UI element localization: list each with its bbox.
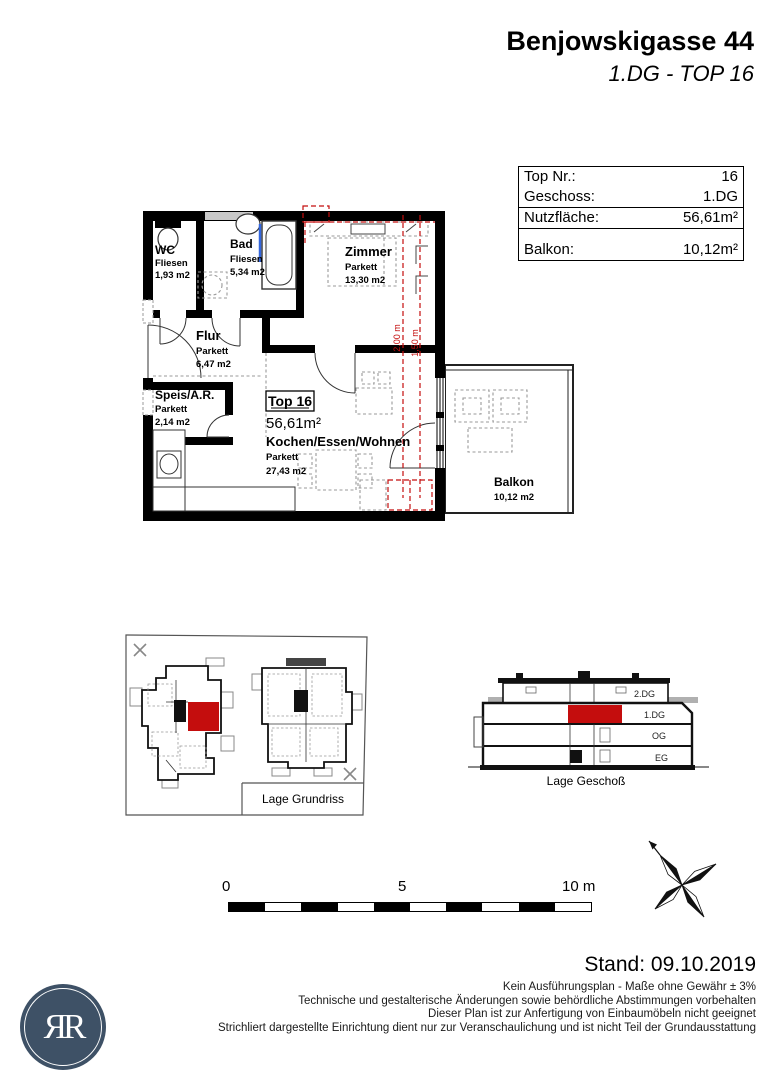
unit-label: Top 16 [268, 393, 312, 409]
disclaimer-line: Kein Ausführungsplan - Maße ohne Gewähr … [218, 981, 756, 995]
table-row: Top Nr.: 16 [519, 167, 743, 187]
floor-plan-drawing: 2,00 m 1,50 m WC Fliesen 1,93 m2 Bad Fli… [138, 188, 583, 533]
room-name-flur: Flur [196, 328, 221, 343]
unit-area: 56,61m² [266, 415, 321, 432]
disclaimer-line: Strichliert dargestellte Einrichtung die… [218, 1022, 756, 1036]
row-value: 56,61m² [683, 209, 738, 227]
room-area-zimmer: 13,30 m2 [345, 275, 385, 286]
company-logo: ЯR [20, 984, 106, 1070]
room-name-balkon: Balkon [494, 475, 534, 489]
site-building-right [252, 658, 362, 776]
washbasin-icon [236, 214, 260, 234]
section-caption: Lage Geschoß [547, 774, 626, 788]
dimension-label: 1,50 m [410, 329, 420, 357]
floor-plan-page: Benjowskigasse 44 1.DG - TOP 16 Top Nr.:… [0, 0, 764, 1080]
toilet-cistern-icon [155, 221, 181, 228]
highlighted-floor [568, 705, 622, 724]
level-label: 2.DG [634, 689, 655, 699]
bathroom-fixtures [155, 214, 296, 298]
scale-bar-segments [228, 902, 592, 912]
room-name-zimmer: Zimmer [345, 244, 392, 259]
room-area-wohnen: 27,43 m2 [266, 466, 306, 477]
scale-label-0: 0 [222, 878, 230, 895]
row-value: 16 [721, 168, 738, 186]
dimension-label: 2,00 m [392, 324, 402, 352]
logo-ring [24, 988, 102, 1066]
highlighted-unit [188, 702, 219, 731]
level-label: EG [655, 753, 668, 763]
section-drawing: 2.DG 1.DG OG EG Lage Geschoß [466, 668, 711, 793]
room-floor-zimmer: Parkett [345, 262, 378, 273]
level-label: 1.DG [644, 710, 665, 720]
room-floor-flur: Parkett [196, 346, 229, 357]
disclaimer-line: Technische und gestalterische Änderungen… [218, 995, 756, 1009]
room-area-speis: 2,14 m2 [155, 417, 190, 428]
row-label: Top Nr.: [524, 168, 576, 186]
row-value: 10,12m² [683, 241, 738, 259]
room-area-wc: 1,93 m2 [155, 270, 190, 281]
site-plan-drawing: Lage Grundriss [118, 628, 383, 828]
disclaimer-block: Kein Ausführungsplan - Maße ohne Gewähr … [218, 981, 756, 1035]
date-stamp: Stand: 09.10.2019 [584, 953, 756, 977]
room-area-balkon: 10,12 m2 [494, 492, 534, 503]
stair-core [174, 700, 186, 722]
room-floor-wohnen: Parkett [266, 452, 299, 463]
header: Benjowskigasse 44 1.DG - TOP 16 [506, 26, 754, 87]
room-name-wc: WC [155, 243, 175, 257]
disclaimer-line: Dieser Plan ist zur Anfertigung von Einb… [218, 1008, 756, 1022]
room-floor-wc: Fliesen [155, 258, 188, 269]
scale-bar: 0 5 10 m [222, 876, 602, 916]
roof [498, 671, 670, 683]
room-name-bad: Bad [230, 237, 253, 251]
dining-table-icon [316, 450, 356, 490]
room-area-bad: 5,34 m2 [230, 267, 265, 278]
scale-label-5: 5 [398, 878, 406, 895]
site-plan-caption: Lage Grundriss [262, 792, 344, 806]
compass-icon [635, 828, 735, 928]
stair-core [294, 690, 308, 712]
site-building-left [130, 658, 234, 788]
room-name-speis: Speis/A.R. [155, 388, 214, 402]
room-floor-bad: Fliesen [230, 254, 263, 265]
row-value: 1.DG [703, 188, 738, 206]
room-floor-speis: Parkett [155, 404, 188, 415]
balcony-outline [445, 365, 573, 513]
scale-label-10: 10 m [562, 878, 595, 895]
page-title: Benjowskigasse 44 [506, 26, 754, 57]
room-area-flur: 6,47 m2 [196, 359, 231, 370]
room-name-wohnen: Kochen/Essen/Wohnen [266, 434, 410, 449]
page-subtitle: 1.DG - TOP 16 [506, 61, 754, 87]
level-label: OG [652, 731, 666, 741]
